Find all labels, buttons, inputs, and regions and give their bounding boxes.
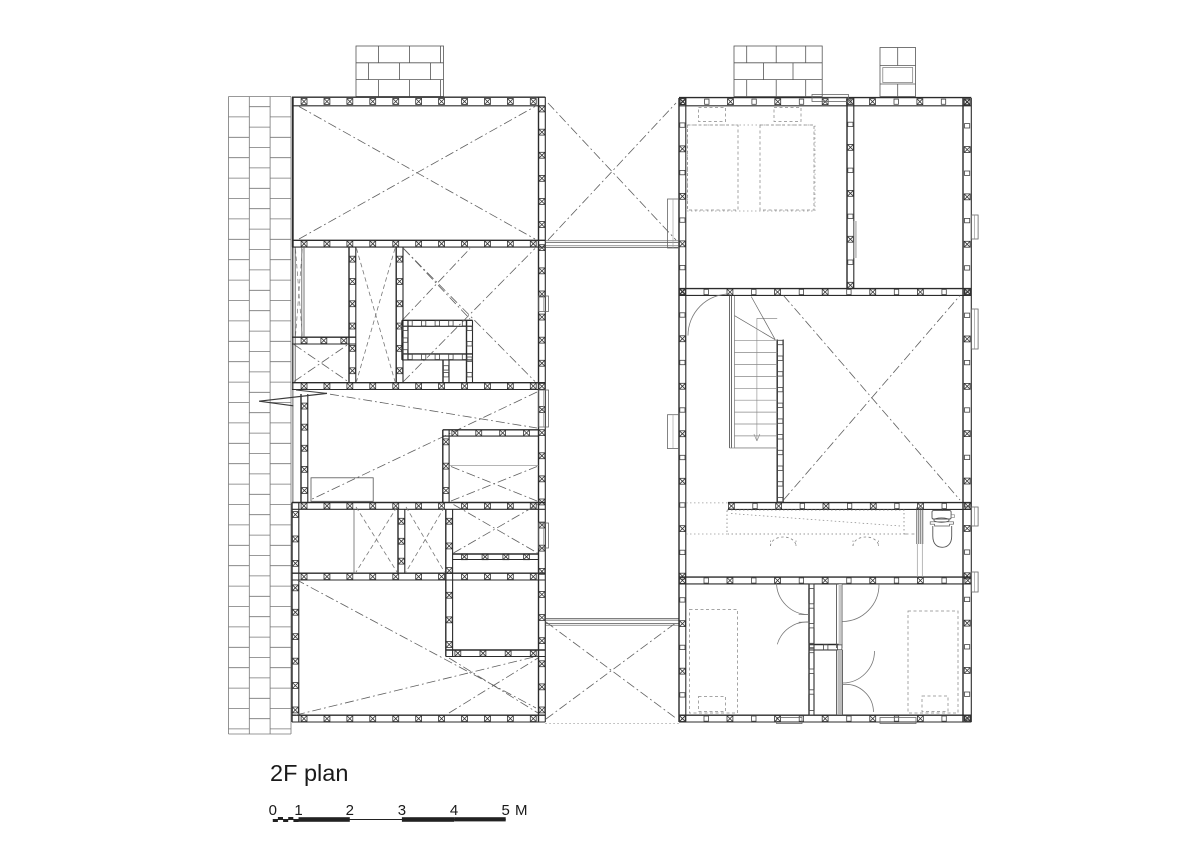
svg-text:4: 4 [450, 802, 458, 819]
svg-text:M: M [515, 802, 528, 819]
svg-text:3: 3 [398, 802, 406, 819]
svg-text:2F plan: 2F plan [270, 760, 348, 786]
svg-text:0: 0 [269, 802, 277, 819]
svg-text:5: 5 [502, 802, 510, 819]
svg-text:2: 2 [346, 802, 354, 819]
svg-text:1: 1 [294, 802, 302, 819]
